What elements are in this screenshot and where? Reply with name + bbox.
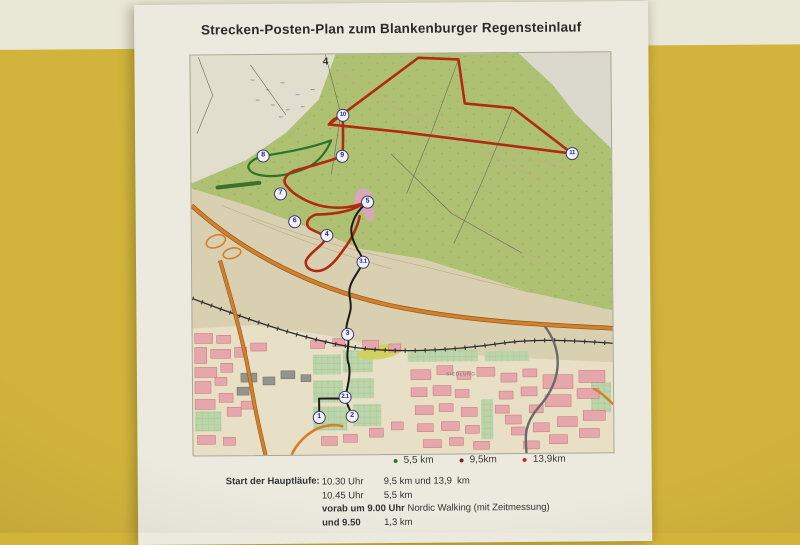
schedule-time: vorab um 9.00 Uhr [322, 502, 405, 516]
distance-legend: 5,5 km9,5km13,9km [394, 454, 566, 466]
checkpoint-badge-2.1: 2.1 [339, 391, 352, 404]
checkpoint-badge-2: 2 [346, 410, 359, 423]
checkpoint-badge-10: 10 [336, 109, 349, 122]
schedule-time: und 9.50 [322, 516, 384, 530]
checkpoint-badge-5: 5 [361, 196, 374, 209]
checkpoint-badge-1: 1 [313, 411, 326, 424]
schedule-time: 10.45 Uhr [322, 489, 384, 503]
poster: Strecken-Posten-Plan zum Blankenburger R… [134, 1, 652, 545]
schedule-detail: 5,5 km [384, 488, 413, 502]
legend-label: 9,5km [470, 454, 497, 465]
map-image: 10891175643.132.1124SIEDLUNG [190, 52, 613, 455]
legend-item: 13,9km [523, 454, 566, 465]
checkpoint-badge-11: 11 [566, 147, 579, 160]
legend-route-dot [523, 457, 527, 461]
legend-route-dot [460, 458, 464, 462]
map-label: 4 [323, 56, 329, 67]
schedule-row: vorab um 9.00 Uhr Nordic Walking (mit Ze… [322, 501, 550, 516]
start-schedule: Start der Hauptläufe: 10.30 Uhr9,5 km un… [138, 472, 652, 476]
map-label: SIEDLUNG [446, 371, 475, 376]
schedule-detail: 1,3 km [384, 515, 413, 529]
schedule-rows: 10.30 Uhr9,5 km und 13,9 km10.45 Uhr5,5 … [322, 474, 550, 530]
poster-title: Strecken-Posten-Plan zum Blankenburger R… [134, 19, 648, 38]
legend-item: 9,5km [460, 454, 497, 465]
legend-item: 5,5 km [394, 455, 434, 466]
legend-label: 5,5 km [404, 455, 434, 466]
schedule-time: 10.30 Uhr [322, 475, 384, 489]
checkpoint-badge-3: 3 [341, 328, 354, 341]
checkpoint-badge-4: 4 [320, 229, 333, 242]
checkpoint-badge-6: 6 [288, 215, 301, 228]
schedule-heading: Start der Hauptläufe: [226, 476, 320, 488]
legend-route-dot [394, 458, 398, 462]
schedule-detail: Nordic Walking (mit Zeitmessung) [405, 501, 550, 516]
legend-label: 13,9km [533, 454, 566, 465]
schedule-row: und 9.501,3 km [322, 514, 550, 529]
checkpoint-badge-8: 8 [257, 149, 270, 162]
checkpoint-badge-3.1: 3.1 [356, 256, 369, 269]
schedule-detail: 9,5 km und 13,9 km [384, 474, 470, 488]
checkpoint-badge-9: 9 [336, 150, 349, 163]
checkpoint-badge-7: 7 [274, 187, 287, 200]
map-overlay: 10891175643.132.1124SIEDLUNG [190, 52, 613, 455]
